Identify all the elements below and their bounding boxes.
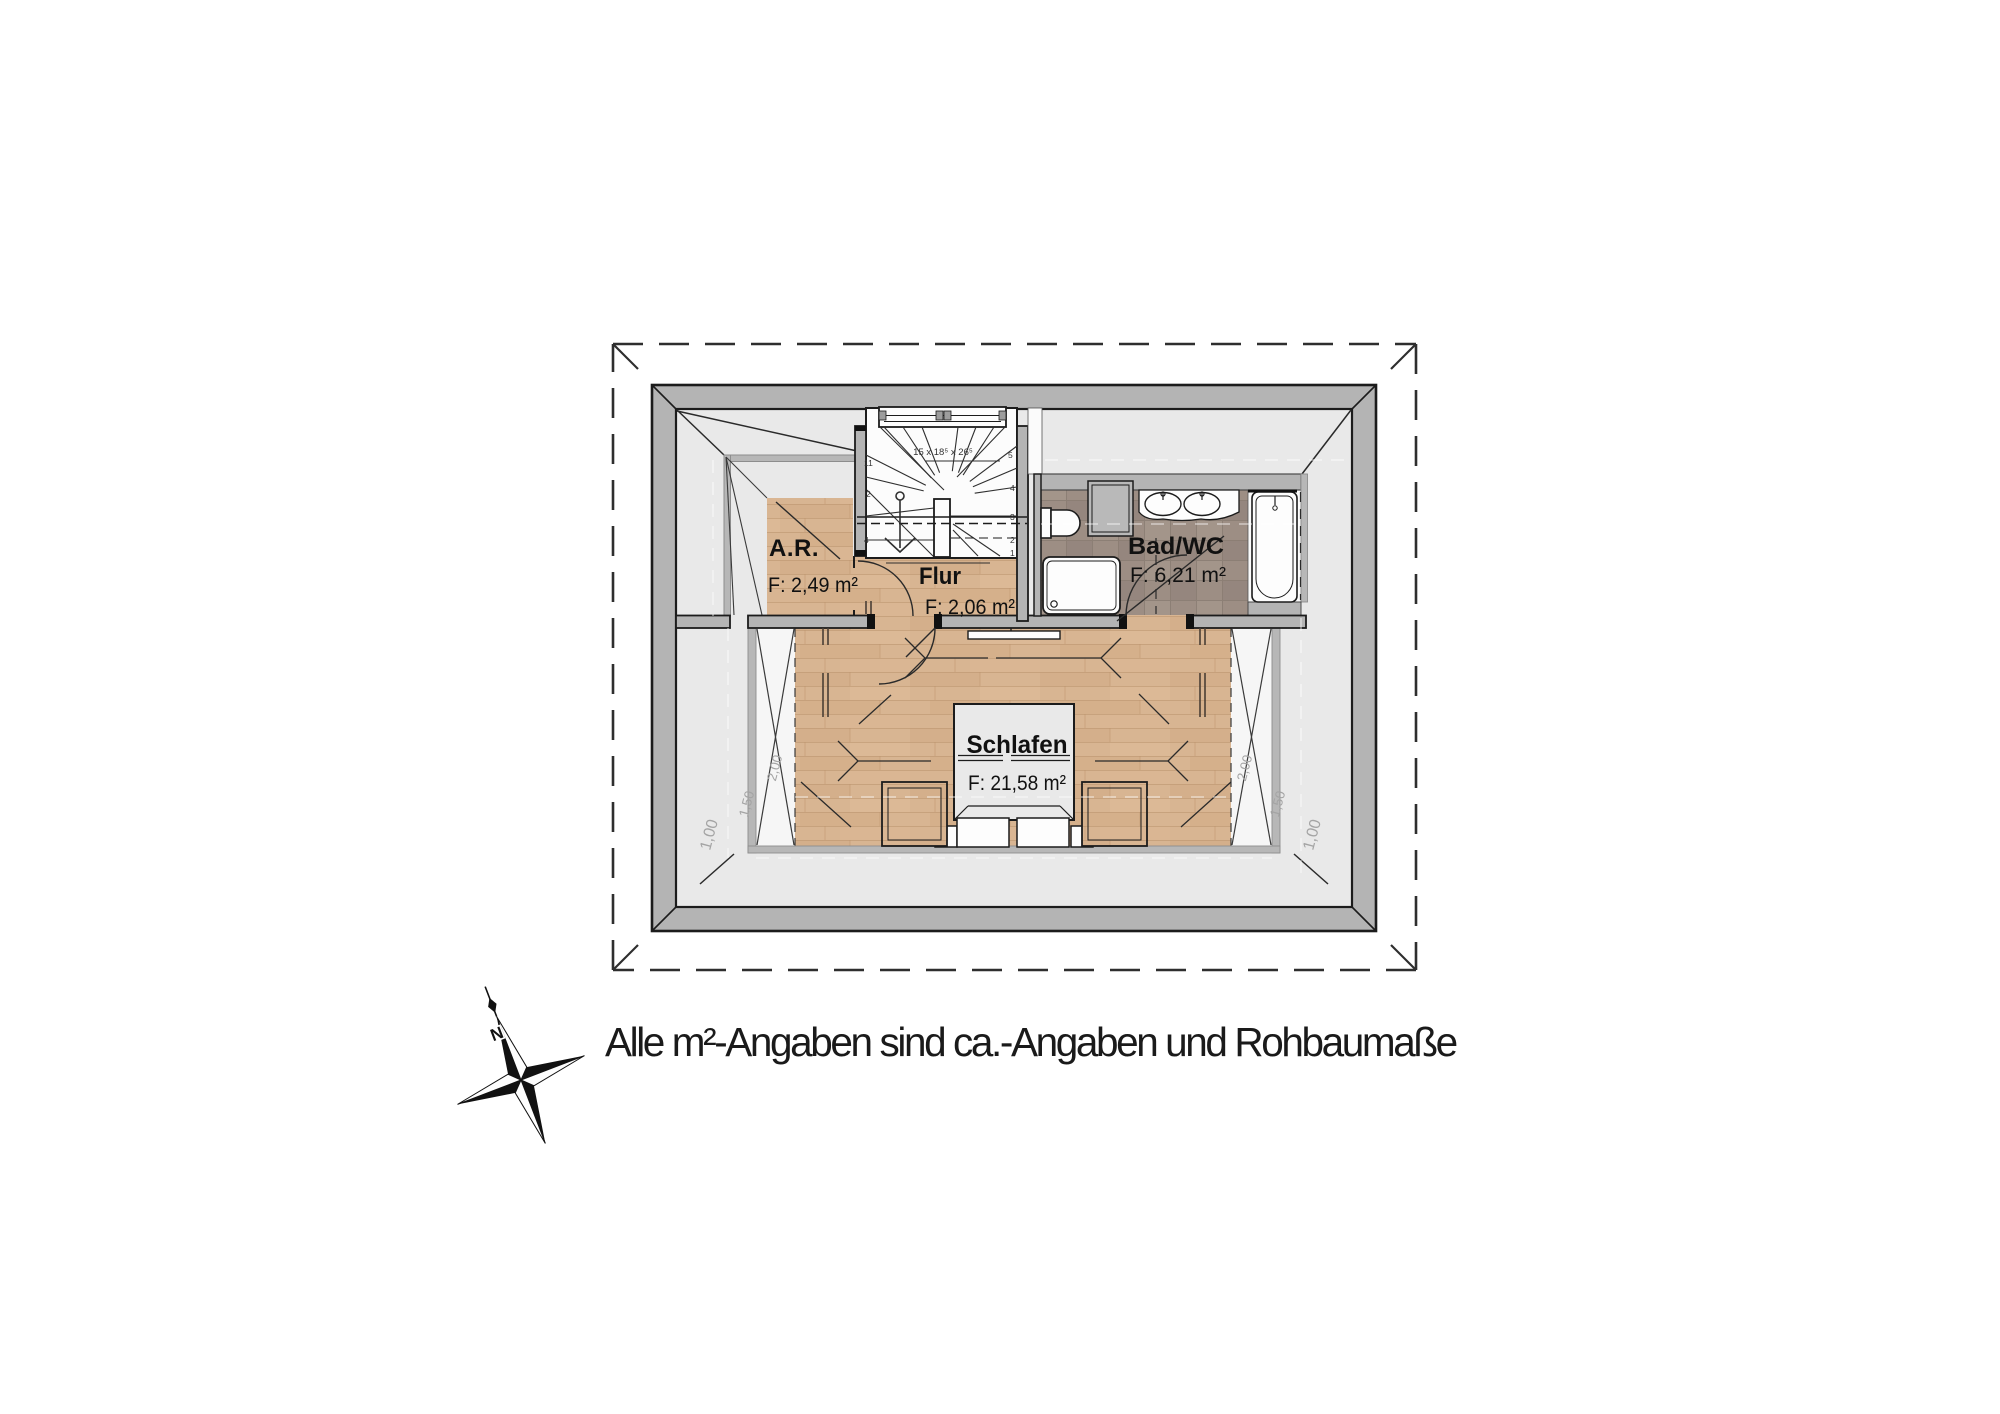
svg-text:Schlafen: Schlafen <box>967 731 1068 759</box>
svg-text:2: 2 <box>1010 535 1015 545</box>
svg-text:F: 2,06 m²: F: 2,06 m² <box>925 596 1015 619</box>
svg-text:F: 2,49 m²: F: 2,49 m² <box>768 574 858 597</box>
svg-text:3: 3 <box>1010 512 1015 522</box>
svg-text:Flur: Flur <box>919 563 961 590</box>
svg-text:15 x 18⁵ x 26⁵: 15 x 18⁵ x 26⁵ <box>913 447 973 458</box>
svg-text:4: 4 <box>864 535 869 545</box>
svg-text:2: 2 <box>866 489 871 499</box>
svg-text:F: 6,21 m²: F: 6,21 m² <box>1130 564 1226 587</box>
svg-text:Alle m²-Angaben sind ca.-Angab: Alle m²-Angaben sind ca.-Angaben und Roh… <box>605 1019 1457 1065</box>
svg-text:11: 11 <box>864 458 873 468</box>
svg-text:Bad/WC: Bad/WC <box>1128 533 1224 560</box>
svg-text:4: 4 <box>1010 483 1015 493</box>
svg-text:1: 1 <box>1010 548 1015 558</box>
svg-text:A.R.: A.R. <box>769 535 819 562</box>
svg-text:F: 21,58 m²: F: 21,58 m² <box>968 772 1066 795</box>
svg-text:5: 5 <box>1008 450 1013 460</box>
